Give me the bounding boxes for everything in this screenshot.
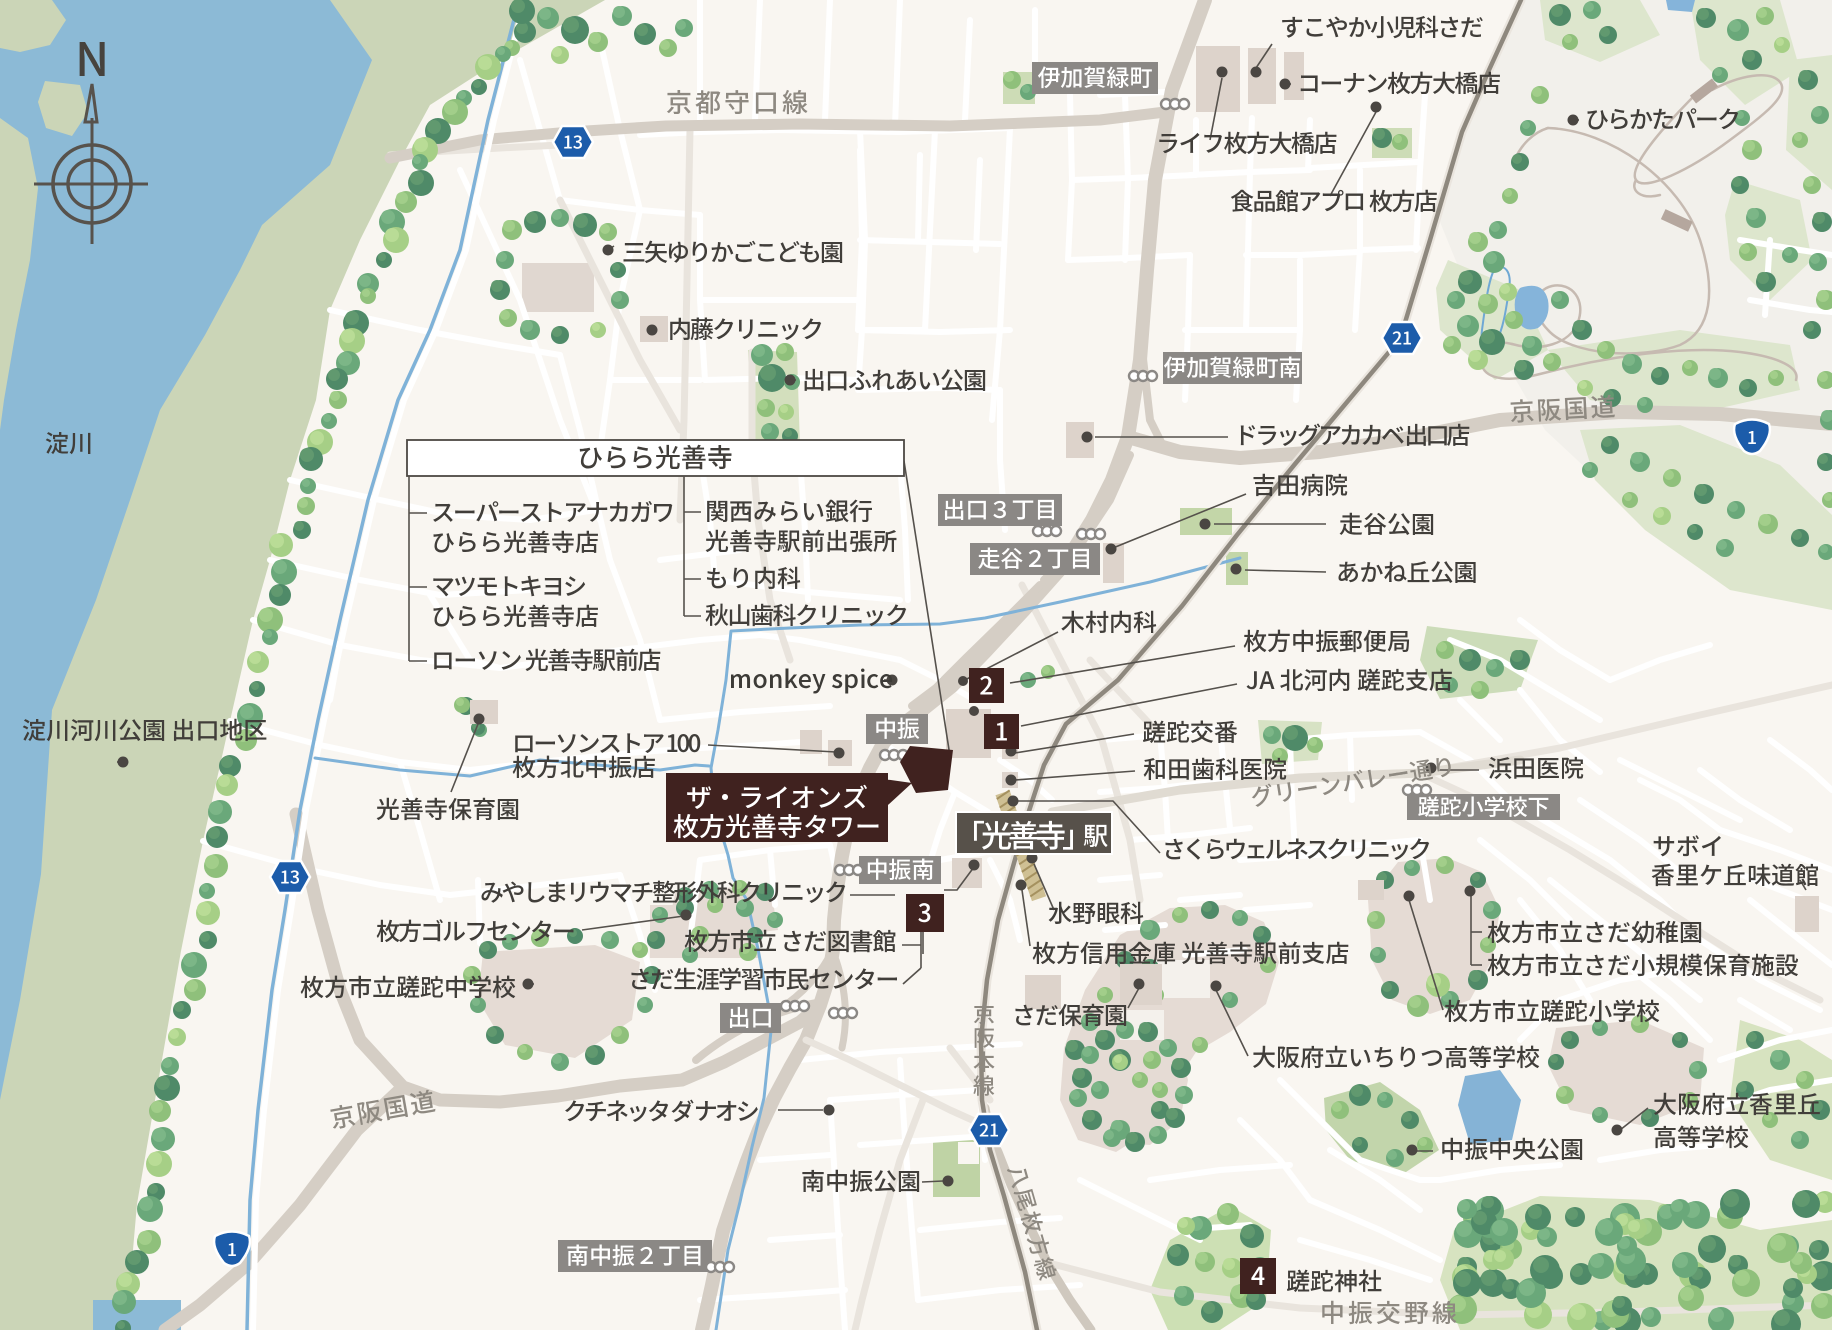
svg-text:ひらら光善寺: ひらら光善寺 (577, 438, 733, 475)
svg-text:3: 3 (918, 894, 932, 930)
svg-text:大阪府立いちりつ高等学校: 大阪府立いちりつ高等学校 (1252, 1038, 1541, 1073)
svg-text:線: 線 (973, 1069, 995, 1101)
svg-text:ローソン 光善寺駅前店: ローソン 光善寺駅前店 (431, 641, 661, 676)
svg-text:「光善寺」: 「光善寺」 (954, 811, 1089, 856)
svg-text:大阪府立香里丘: 大阪府立香里丘 (1653, 1085, 1821, 1120)
svg-text:中振: 中振 (874, 710, 920, 744)
svg-text:内藤クリニック: 内藤クリニック (668, 310, 822, 345)
svg-text:中振交野線: 中振交野線 (1320, 1294, 1460, 1330)
svg-text:光善寺駅前出張所: 光善寺駅前出張所 (705, 522, 897, 557)
svg-text:1: 1 (227, 1236, 237, 1262)
svg-text:枚方ゴルフセンター: 枚方ゴルフセンター (376, 912, 574, 947)
svg-text:さくらウェルネスクリニック: さくらウェルネスクリニック (1162, 830, 1430, 865)
svg-text:枚方市立蹉跎中学校: 枚方市立蹉跎中学校 (300, 968, 517, 1003)
svg-text:さだ保育園: さだ保育園 (1012, 996, 1127, 1031)
svg-text:枚方光善寺タワー: 枚方光善寺タワー (673, 807, 881, 844)
svg-text:淀川河川公園 出口地区: 淀川河川公園 出口地区 (22, 711, 267, 746)
svg-text:枚方北中振店: 枚方北中振店 (512, 748, 656, 783)
svg-text:コーナン枚方大橋店: コーナン枚方大橋店 (1297, 64, 1501, 99)
svg-text:高等学校: 高等学校 (1653, 1118, 1750, 1153)
svg-text:吉田病院: 吉田病院 (1252, 466, 1348, 501)
svg-text:京都守口線: 京都守口線 (666, 83, 811, 120)
svg-text:三矢ゆりかごこども園: 三矢ゆりかごこども園 (622, 233, 843, 268)
svg-text:伊加賀緑町南: 伊加賀緑町南 (1164, 349, 1302, 383)
svg-text:出口: 出口 (728, 999, 774, 1033)
svg-text:ひらら光善寺店: ひらら光善寺店 (431, 597, 599, 632)
svg-text:みやしまリウマチ整形外科クリニック: みやしまリウマチ整形外科クリニック (480, 873, 846, 908)
svg-text:枚方市立蹉跎小学校: 枚方市立蹉跎小学校 (1444, 992, 1661, 1027)
svg-text:クチネッタ ダ ナオシ: クチネッタ ダ ナオシ (563, 1092, 759, 1127)
svg-text:枚方信用金庫 光善寺駅前支店: 枚方信用金庫 光善寺駅前支店 (1032, 934, 1349, 969)
svg-text:京阪国道: 京阪国道 (1509, 387, 1619, 429)
svg-text:ライフ枚方大橋店: ライフ枚方大橋店 (1156, 124, 1337, 159)
svg-text:あかね丘公園: あかね丘公園 (1336, 553, 1477, 588)
svg-text:枚方市立さだ幼稚園: 枚方市立さだ幼稚園 (1487, 913, 1703, 948)
svg-text:中振中央公園: 中振中央公園 (1440, 1130, 1584, 1165)
svg-text:枚方市立さだ小規模保育施設: 枚方市立さだ小規模保育施設 (1487, 946, 1799, 981)
svg-text:蹉跎神社: 蹉跎神社 (1286, 1262, 1382, 1297)
svg-text:monkey spice: monkey spice (729, 660, 893, 696)
svg-text:光善寺保育園: 光善寺保育園 (376, 790, 520, 825)
svg-text:21: 21 (1392, 325, 1413, 351)
svg-text:水野眼科: 水野眼科 (1048, 894, 1144, 929)
svg-text:13: 13 (563, 129, 584, 155)
svg-text:香里ケ丘味道館: 香里ケ丘味道館 (1651, 856, 1819, 891)
svg-text:N: N (75, 24, 109, 90)
svg-text:ひらかたパーク: ひらかたパーク (1585, 100, 1739, 135)
svg-text:1: 1 (994, 713, 1008, 749)
svg-text:枚方市立 さだ図書館: 枚方市立 さだ図書館 (684, 922, 896, 957)
svg-text:中振南: 中振南 (866, 851, 935, 885)
svg-text:1: 1 (1747, 424, 1757, 450)
svg-text:枚方中振郵便局: 枚方中振郵便局 (1243, 622, 1411, 657)
svg-text:21: 21 (979, 1117, 1000, 1143)
svg-text:さだ生涯学習市民センター: さだ生涯学習市民センター (628, 960, 898, 995)
svg-text:JA 北河内 蹉跎支店: JA 北河内 蹉跎支店 (1246, 661, 1453, 696)
svg-text:伊加賀緑町: 伊加賀緑町 (1038, 59, 1153, 93)
svg-text:出口ふれあい公園: 出口ふれあい公園 (802, 361, 986, 396)
svg-text:すこやか小児科さだ: すこやか小児科さだ (1280, 8, 1483, 43)
svg-text:ひらら光善寺店: ひらら光善寺店 (431, 523, 599, 558)
svg-text:淀川: 淀川 (45, 424, 93, 459)
svg-text:もり内科: もり内科 (705, 559, 801, 594)
svg-text:駅: 駅 (1083, 817, 1108, 853)
svg-text:南中振２丁目: 南中振２丁目 (566, 1237, 704, 1271)
svg-text:南中振公園: 南中振公園 (801, 1162, 921, 1197)
svg-text:食品館アプロ 枚方店: 食品館アプロ 枚方店 (1230, 182, 1438, 217)
svg-text:浜田医院: 浜田医院 (1488, 749, 1584, 784)
svg-text:木村内科: 木村内科 (1061, 603, 1157, 638)
svg-text:走谷公園: 走谷公園 (1339, 505, 1435, 540)
svg-text:出口３丁目: 出口３丁目 (943, 491, 1058, 525)
svg-text:秋山歯科クリニック: 秋山歯科クリニック (705, 596, 908, 631)
svg-text:2: 2 (979, 667, 993, 703)
svg-text:13: 13 (280, 864, 301, 890)
svg-text:蹉跎小学校下: 蹉跎小学校下 (1417, 790, 1549, 822)
svg-text:蹉跎交番: 蹉跎交番 (1142, 713, 1238, 748)
svg-text:走谷２丁目: 走谷２丁目 (978, 540, 1093, 574)
svg-text:ドラッグアカカベ 出口店: ドラッグアカカベ 出口店 (1234, 416, 1470, 451)
svg-text:4: 4 (1251, 1257, 1265, 1293)
